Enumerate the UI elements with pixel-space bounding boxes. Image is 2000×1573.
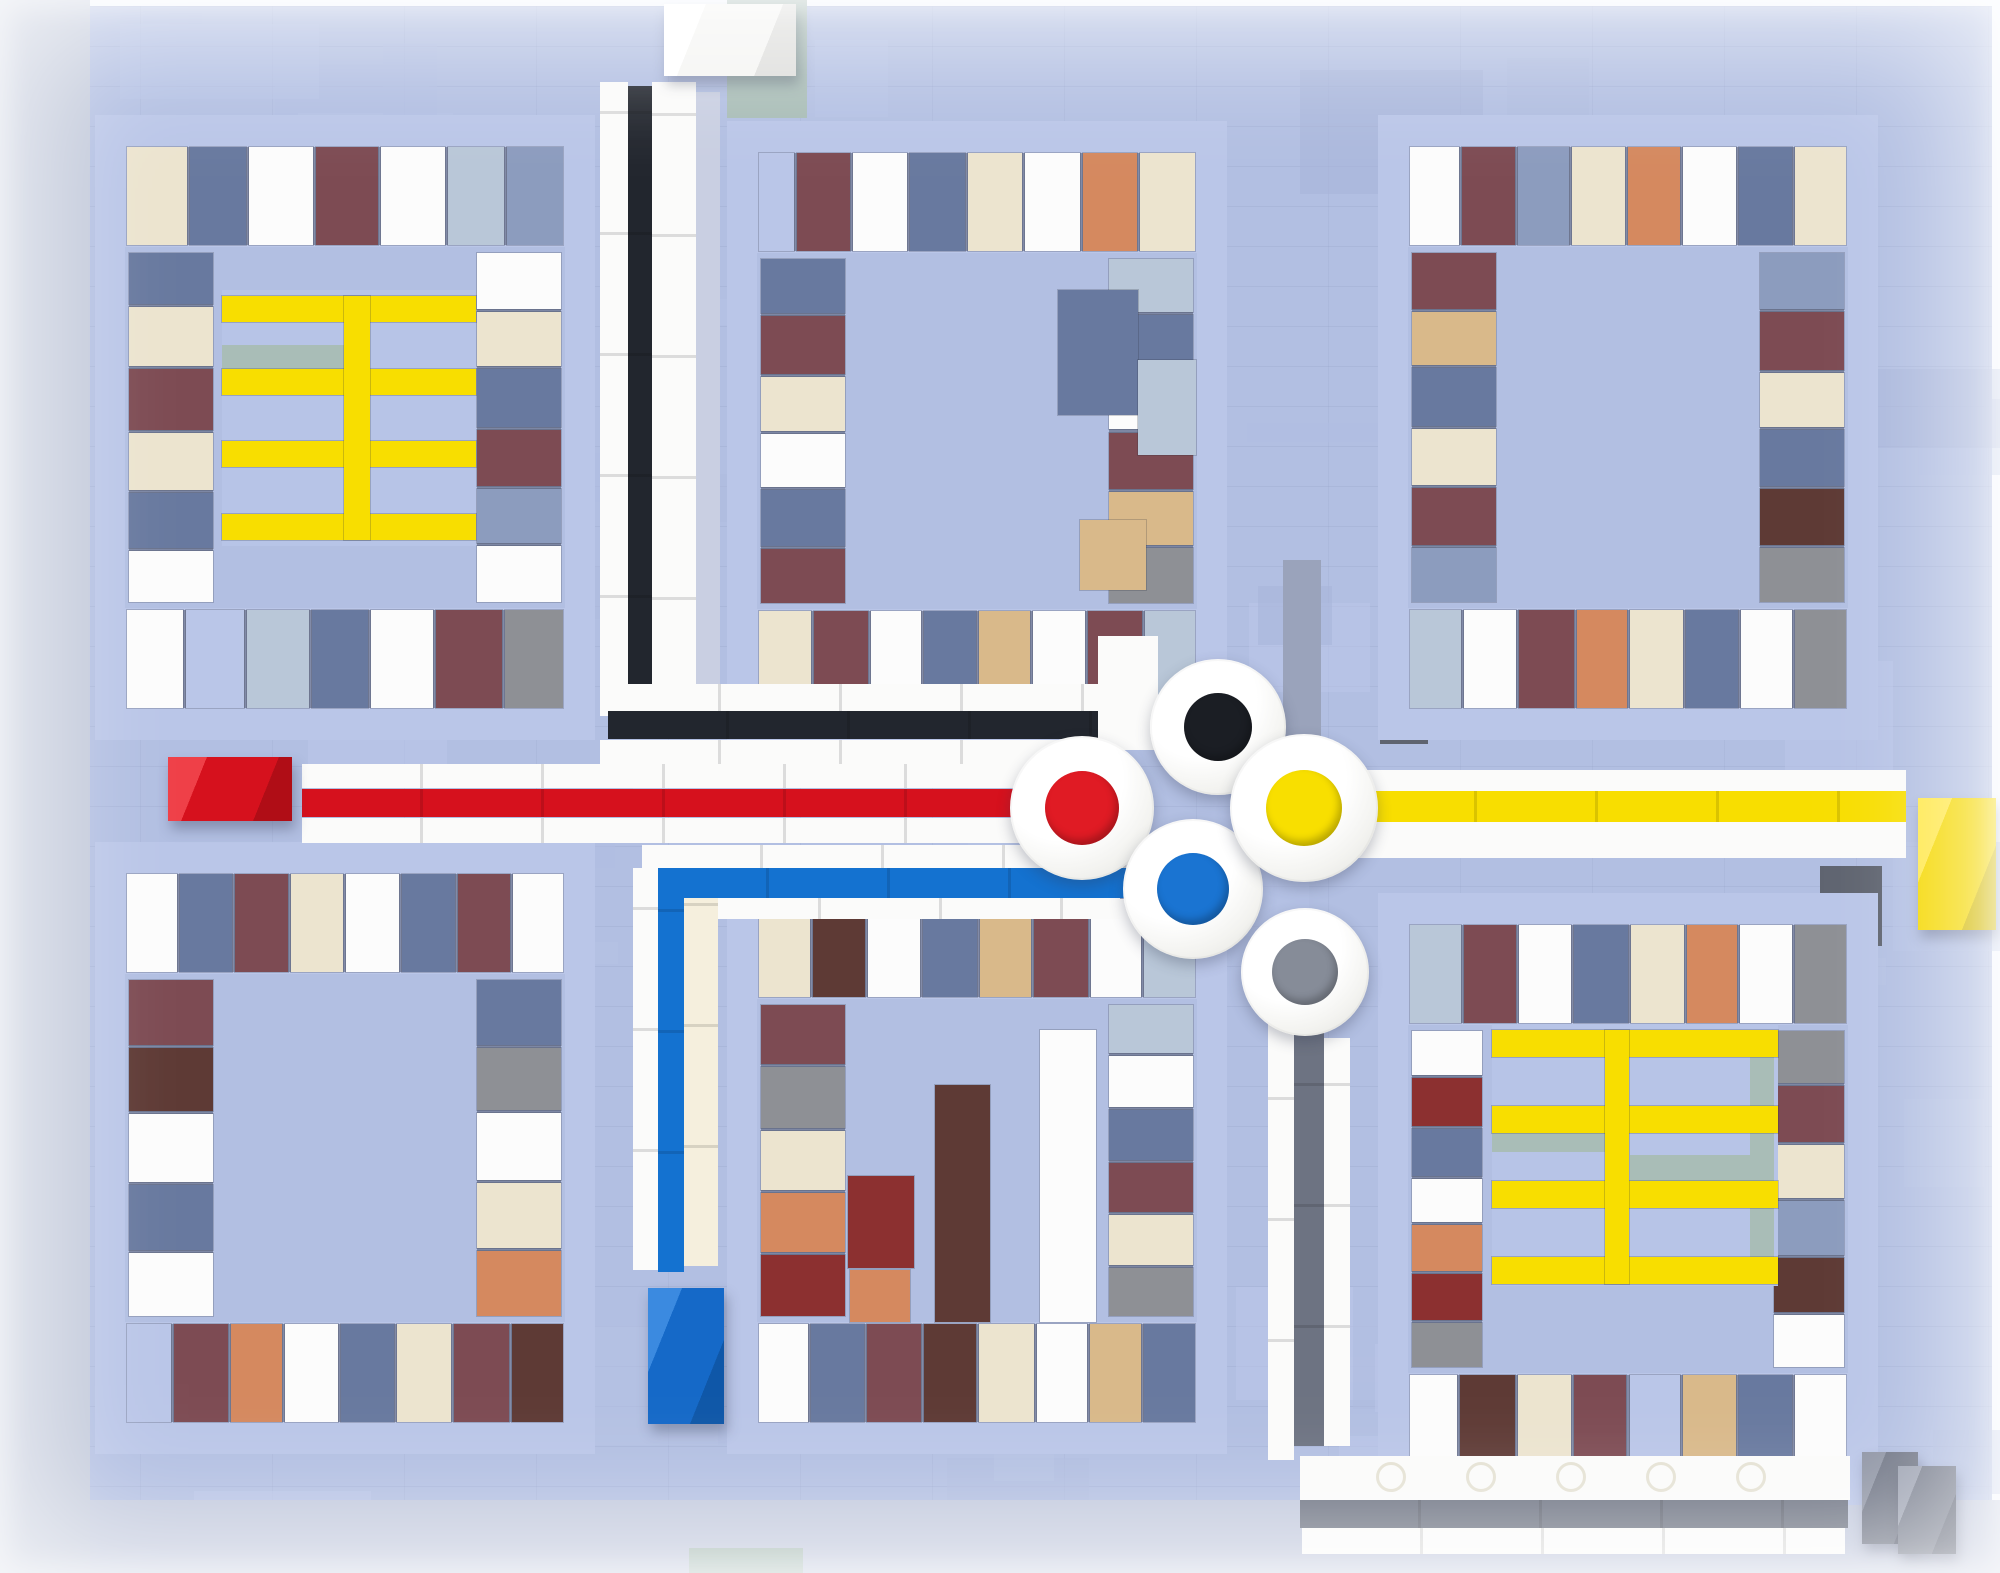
mosaic-tile — [1739, 147, 1792, 245]
yellow-ladder-bottom-right-rung — [1492, 1030, 1778, 1057]
mosaic-tile — [1109, 1268, 1193, 1316]
mosaic-tile — [477, 312, 561, 366]
mosaic-tile — [129, 1185, 213, 1250]
se-grey-road-stripe — [1300, 1500, 1848, 1528]
mosaic-tile — [1412, 1078, 1482, 1126]
yellow-ladder-bottom-right-rung — [1492, 1181, 1778, 1208]
mosaic-tile — [1412, 488, 1496, 546]
mosaic-tile — [867, 1324, 921, 1422]
panel-top-middle-accent-tile — [1058, 290, 1138, 415]
mosaic-tile — [127, 610, 183, 708]
mosaic-tile — [477, 253, 561, 309]
mosaic-tile — [477, 546, 561, 602]
mosaic-tile — [477, 1048, 561, 1111]
yellow-ladder-top-left-vertical-bar — [344, 296, 370, 540]
mosaic-tile — [1412, 1323, 1482, 1367]
mosaic-tile — [129, 493, 213, 548]
mosaic-tile — [1795, 610, 1846, 708]
mosaic-tile — [1687, 925, 1738, 1023]
mosaic-tile — [247, 610, 309, 708]
mosaic-tile — [1109, 1163, 1193, 1213]
mosaic-tile — [129, 1114, 213, 1181]
mosaic-tile — [1037, 1324, 1088, 1422]
panel-bottom-middle-accent-tile — [935, 1085, 990, 1322]
mosaic-tile — [761, 1005, 845, 1064]
mosaic-tile — [1412, 1274, 1482, 1321]
mosaic-tile — [371, 610, 433, 708]
mosaic-tile — [1760, 489, 1844, 545]
mosaic-tile — [316, 147, 378, 245]
mosaic-tile — [381, 147, 445, 245]
mosaic-tile — [249, 147, 313, 245]
mosaic-tile — [1774, 1201, 1844, 1255]
mosaic-tile — [1412, 253, 1496, 309]
mosaic-tile — [1683, 147, 1736, 245]
mosaic-tile — [312, 610, 368, 708]
mosaic-tile — [1628, 147, 1681, 245]
mosaic-tile — [1090, 1324, 1141, 1422]
mosaic-tile — [1774, 1145, 1844, 1199]
mosaic-tile — [1144, 1324, 1195, 1422]
north-road-white-left — [600, 82, 628, 716]
west-red-road-white-lower — [302, 818, 1070, 843]
mosaic-tile — [797, 153, 850, 251]
panel-bottom-middle-accent-tile — [850, 1270, 910, 1322]
mosaic-tile — [180, 874, 232, 972]
east-black-road-stripe — [608, 711, 1157, 739]
mosaic-tile — [129, 369, 213, 430]
mosaic-tile — [129, 1048, 213, 1111]
mosaic-tile — [186, 610, 244, 708]
mosaic-tile — [190, 147, 246, 245]
mosaic-tile — [129, 307, 213, 366]
mosaic-tile — [1109, 1110, 1193, 1160]
mosaic-tile — [1109, 1056, 1193, 1107]
mosaic-tile — [1686, 610, 1739, 708]
mosaic-tile — [1741, 610, 1792, 708]
east-black-road-white-upper — [600, 684, 1122, 711]
roundabout-disc-blue-center — [1157, 853, 1229, 925]
mosaic-tile — [127, 874, 177, 972]
mosaic-tile — [341, 1324, 394, 1422]
roundabout-disc-yellow-center — [1266, 770, 1342, 846]
plate-stud — [1736, 1462, 1766, 1492]
mosaic-tile — [761, 316, 845, 374]
mosaic-tile — [477, 430, 561, 486]
mosaic-tile — [1464, 610, 1517, 708]
mosaic-tile — [127, 1324, 171, 1422]
mosaic-tile — [1774, 1031, 1844, 1083]
grey-end-cap-front — [1898, 1466, 1956, 1554]
mosaic-tile — [1410, 925, 1461, 1023]
mosaic-tile — [761, 1067, 845, 1128]
mosaic-tile — [477, 1251, 561, 1316]
mosaic-tile — [1140, 153, 1195, 251]
mosaic-tile — [1795, 147, 1846, 245]
mosaic-tile — [759, 1324, 808, 1422]
mosaic-tile — [1760, 373, 1844, 427]
mosaic-tile — [761, 259, 845, 313]
mosaic-tile — [235, 874, 288, 972]
panel-bottom-middle-accent-tile — [1040, 1030, 1096, 1322]
mosaic-tile — [1774, 1258, 1844, 1312]
baseplate-plank — [120, 24, 319, 99]
panel-bottom-middle-accent-tile — [848, 1176, 914, 1268]
mosaic-tile — [129, 433, 213, 490]
white-end-cap — [664, 4, 796, 76]
mosaic-tile — [454, 1324, 509, 1422]
mosaic-tile — [1412, 1129, 1482, 1176]
mosaic-tile — [1412, 429, 1496, 485]
mosaic-tile — [1631, 925, 1683, 1023]
mosaic-tile — [1760, 430, 1844, 486]
mosaic-tile — [285, 1324, 338, 1422]
south-grey-road-stripe — [1294, 1004, 1324, 1446]
cluster-white-connector — [1098, 636, 1158, 750]
south-grey-road-white-left — [1268, 1000, 1294, 1460]
lego-mosaic-photo — [0, 0, 2000, 1573]
west-red-road-stripe — [302, 789, 1064, 817]
mosaic-tile — [129, 551, 213, 602]
mosaic-tile — [1083, 153, 1138, 251]
south-blue-road-white-v — [633, 868, 658, 1270]
mosaic-tile — [402, 874, 455, 972]
roundabout-disc-black-center — [1184, 693, 1252, 761]
mosaic-tile — [1412, 1031, 1482, 1075]
mosaic-tile — [910, 153, 965, 251]
north-road-black-stripe — [628, 86, 652, 716]
mosaic-tile — [1412, 548, 1496, 602]
mosaic-tile — [507, 147, 563, 245]
mosaic-tile — [505, 610, 563, 708]
mosaic-tile — [477, 980, 561, 1045]
mosaic-tile — [174, 1324, 227, 1422]
mosaic-tile — [1574, 925, 1628, 1023]
south-grey-road-white-right — [1324, 1038, 1350, 1446]
mosaic-tile — [1412, 368, 1496, 426]
yellow-ladder-bottom-right-accent — [1630, 1155, 1750, 1182]
mosaic-tile — [291, 874, 343, 972]
mosaic-tile — [1760, 548, 1844, 602]
mosaic-tile — [1740, 925, 1792, 1023]
plate-stud — [1376, 1462, 1406, 1492]
mosaic-tile — [512, 1324, 563, 1422]
se-grey-road-white-lower — [1302, 1528, 1845, 1554]
yellow-ladder-bottom-right-accent — [1750, 1030, 1774, 1284]
roundabout-disc-red-center — [1045, 771, 1119, 845]
mosaic-tile — [979, 1324, 1033, 1422]
accent-tile — [0, 0, 90, 1573]
mosaic-tile — [513, 874, 563, 972]
mosaic-tile — [127, 147, 187, 245]
yellow-ladder-bottom-right-rung — [1492, 1106, 1778, 1133]
mosaic-tile — [853, 153, 908, 251]
mosaic-tile — [1109, 1005, 1193, 1053]
mosaic-tile — [1412, 312, 1496, 366]
baseplate-plank — [1904, 1099, 1985, 1187]
mosaic-tile — [761, 549, 845, 603]
west-red-road-white-upper — [302, 764, 1094, 788]
mosaic-tile — [1519, 610, 1573, 708]
north-road-side-shadow — [696, 92, 720, 716]
mosaic-tile — [759, 153, 794, 251]
blue-end-cap — [648, 1288, 724, 1424]
roundabout-disc-grey — [1241, 908, 1369, 1036]
mosaic-tile — [761, 1131, 845, 1190]
baseplate-plank — [815, 40, 888, 117]
accent-tile — [689, 1548, 803, 1573]
red-end-cap — [168, 757, 292, 821]
panel-top-middle-accent-tile — [1138, 360, 1196, 455]
mosaic-tile — [129, 980, 213, 1045]
south-blue-road-cream-v — [684, 898, 718, 1266]
mosaic-tile — [1412, 1179, 1482, 1223]
mosaic-tile — [761, 1193, 845, 1252]
mosaic-tile — [129, 1253, 213, 1316]
mosaic-tile — [761, 490, 845, 546]
mosaic-tile — [1760, 253, 1844, 309]
roundabout-disc-grey-center — [1272, 939, 1338, 1005]
mosaic-tile — [1774, 1315, 1844, 1367]
mosaic-tile — [1760, 312, 1844, 370]
panel-top-middle-accent-tile — [1080, 520, 1146, 590]
north-road-white-right — [652, 82, 696, 718]
mosaic-tile — [761, 1255, 845, 1316]
yellow-end-cap — [1918, 798, 1996, 930]
mosaic-tile — [397, 1324, 450, 1422]
plate-stud — [1646, 1462, 1676, 1492]
mosaic-tile — [1577, 610, 1628, 708]
mosaic-tile — [761, 434, 845, 486]
east-yellow-road-stripe — [1356, 791, 1906, 822]
south-blue-road-white-lower — [700, 898, 1120, 919]
mosaic-tile — [1410, 147, 1459, 245]
mosaic-tile — [436, 610, 502, 708]
mosaic-tile — [1774, 1086, 1844, 1142]
se-grey-road-white-plate — [1300, 1456, 1850, 1500]
mosaic-tile — [1795, 925, 1846, 1023]
mosaic-tile — [448, 147, 504, 245]
mosaic-tile — [346, 874, 399, 972]
mosaic-tile — [477, 369, 561, 427]
yellow-ladder-top-left-accent — [222, 345, 344, 369]
mosaic-tile — [1572, 147, 1625, 245]
mosaic-tile — [1109, 1215, 1193, 1265]
mosaic-tile — [1464, 925, 1516, 1023]
yellow-ladder-bottom-right-vertical-bar — [1605, 1030, 1629, 1284]
plate-stud — [1466, 1462, 1496, 1492]
mosaic-tile — [968, 153, 1023, 251]
mosaic-tile — [1518, 147, 1569, 245]
roundabout-disc-yellow — [1230, 734, 1378, 882]
mosaic-tile — [1519, 925, 1571, 1023]
mosaic-tile — [477, 489, 561, 543]
mosaic-tile — [811, 1324, 864, 1422]
plate-stud — [1556, 1462, 1586, 1492]
mosaic-tile — [477, 1113, 561, 1180]
mosaic-tile — [231, 1324, 282, 1422]
mosaic-tile — [129, 253, 213, 304]
mosaic-tile — [761, 377, 845, 431]
mosaic-tile — [1630, 610, 1683, 708]
yellow-ladder-bottom-right-rung — [1492, 1257, 1778, 1284]
mosaic-tile — [924, 1324, 977, 1422]
mosaic-tile — [1410, 610, 1461, 708]
mosaic-tile — [1025, 153, 1080, 251]
south-blue-road-stripe-v — [658, 868, 684, 1272]
mosaic-tile — [477, 1183, 561, 1248]
mosaic-tile — [1412, 1225, 1482, 1270]
mosaic-tile — [1462, 147, 1515, 245]
mosaic-tile — [458, 874, 510, 972]
